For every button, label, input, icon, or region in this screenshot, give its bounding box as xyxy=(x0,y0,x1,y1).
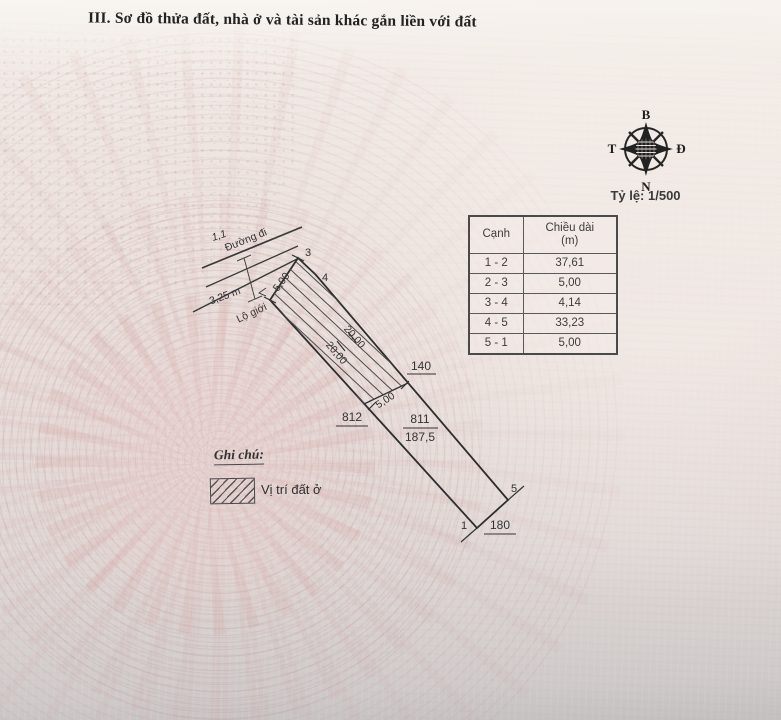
neighbor-parcel-140: 140 xyxy=(411,359,431,373)
setback-distance-label: 3,25 m xyxy=(208,285,243,307)
certificate-page: III. Sơ đồ thửa đất, nhà ở và tài sản kh… xyxy=(0,0,781,720)
vertex-1-label: 1 xyxy=(461,520,467,532)
neighbor-parcel-812: 812 xyxy=(342,410,362,424)
legend-item-label: Vị trí đất ở xyxy=(261,482,322,497)
vertex-3-label: 3 xyxy=(305,247,311,259)
plot-diagram: 1,1 Đường đi 3,25 m Lộ giới 5,00 20,00 2… xyxy=(0,0,781,720)
vertex-5-label: 5 xyxy=(511,483,517,495)
dimension-arrow xyxy=(259,288,266,296)
parcel-area-label: 187,5 xyxy=(405,430,435,444)
setback-name-label: Lộ giới xyxy=(235,301,269,325)
legend-heading: Ghi chú: xyxy=(214,447,264,466)
vertex-4-label: 4 xyxy=(322,272,328,284)
residential-hatch-swatch xyxy=(210,478,255,505)
neighbor-parcel-180: 180 xyxy=(490,518,510,532)
parcel-number-label: 811 xyxy=(410,412,429,426)
